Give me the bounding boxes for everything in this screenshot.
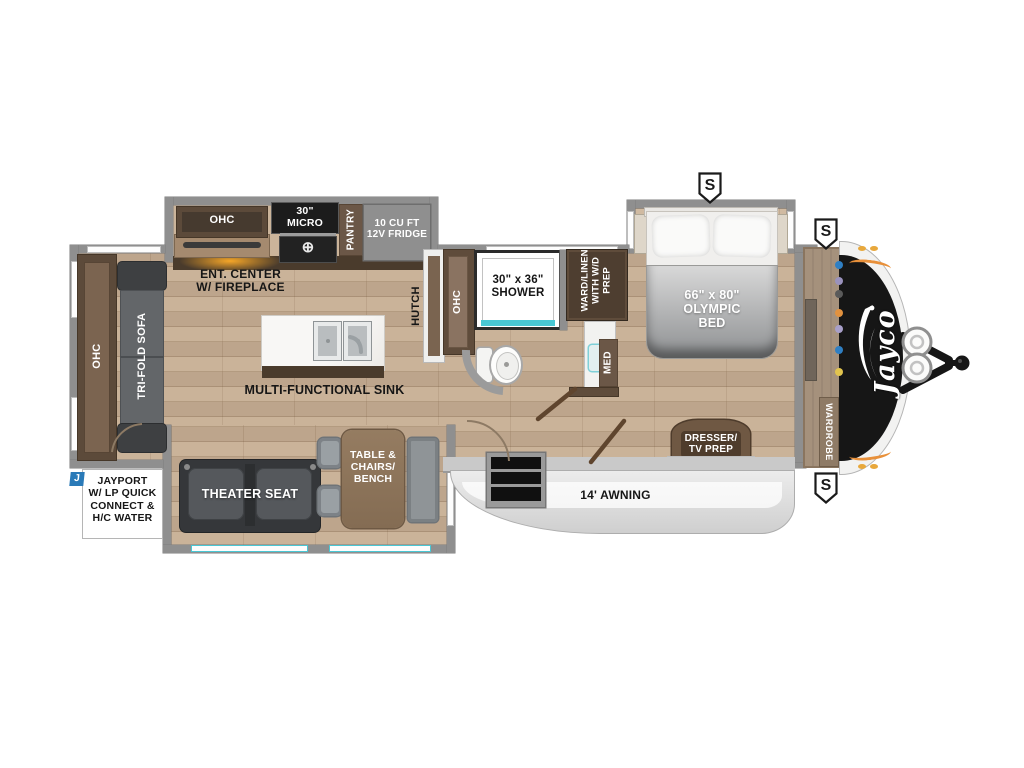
bed-pillow-right (712, 214, 771, 258)
sink-drain-left (326, 339, 330, 343)
front-dot-7 (835, 368, 843, 376)
cap-marker-light-1 (858, 246, 866, 251)
speaker-badge-front-top: S (814, 218, 838, 250)
top-window-a (88, 247, 160, 252)
bed-pillow-left (651, 214, 710, 258)
nightstand-left (635, 215, 647, 253)
entry-step-2 (491, 472, 541, 484)
badge-letter: S (821, 223, 832, 240)
front-dot-2 (835, 277, 843, 285)
hitch-assembly (895, 318, 975, 410)
wardrobe-label: WARDROBE (824, 400, 834, 464)
cap-marker-light-3 (858, 464, 866, 469)
hutch-label: HUTCH (410, 281, 422, 331)
left-window-1 (72, 262, 77, 317)
hitch-ball-icon (955, 356, 970, 371)
dinette-label: TABLE & CHAIRS/ BENCH (344, 450, 402, 485)
med-label: MED (602, 343, 613, 383)
speaker-badge-front-bottom: S (814, 472, 838, 504)
dinette-chair-1 (318, 438, 342, 468)
under-med-wall (570, 388, 618, 396)
entry-step-1 (491, 457, 541, 469)
island-label: MULTI-FUNCTIONAL SINK (237, 383, 412, 397)
jayport-label: JAYPORT W/ LP QUICK CONNECT & H/C WATER (83, 475, 162, 525)
front-dot-5 (835, 325, 843, 333)
dinette-bench (408, 438, 438, 522)
ward-linen-label: WARD/LINEN WITH W/D PREP (581, 246, 614, 314)
island-base (262, 366, 384, 378)
front-dot-4 (835, 309, 843, 317)
propane-tank-2-icon (903, 354, 931, 382)
left-window-2 (72, 398, 77, 450)
theater-label: THEATER SEAT (185, 487, 315, 501)
propane-tank-1-icon (903, 328, 931, 356)
sofa-label: TRI-FOLD SOFA (136, 301, 148, 411)
bath-ohc-label: OHC (452, 282, 464, 322)
fridge-label: 10 CU FT 12V FRIDGE (364, 218, 430, 240)
bedroom-front-wall (795, 253, 803, 462)
sofa-arm-bottom (118, 424, 166, 452)
cap-marker-light-4 (870, 464, 878, 469)
shower-label: 30" x 36" SHOWER (476, 274, 560, 300)
cap-marker-light-2 (870, 246, 878, 251)
jayport-badge-letter: J (69, 473, 84, 484)
jayport-badge: J (69, 472, 84, 486)
theater-screw-tr (310, 464, 316, 470)
tv-icon (183, 242, 261, 248)
bath-partition-wall (560, 250, 567, 330)
shower-teal-strip (481, 320, 555, 326)
microwave-label: 30" MICRO (272, 206, 338, 230)
slide-window-1 (192, 546, 307, 551)
sink-drain-right (356, 339, 360, 343)
kitchen-ohc-label: OHC (177, 214, 267, 226)
badge-letter: S (821, 477, 832, 494)
dresser-label: DRESSER/ TV PREP (681, 433, 741, 455)
kitchen-slide-left-wall (165, 197, 173, 262)
pantry-label: PANTRY (345, 202, 356, 258)
bottom-wall-a (70, 460, 163, 468)
bed-label: 66" x 80" OLYMPIC BED (652, 288, 772, 330)
dinette-chair-2 (318, 486, 342, 516)
hutch-inner (428, 256, 440, 356)
hutch (424, 250, 444, 362)
toilet-flush-dot (504, 362, 509, 367)
burner-icon: ⊕ (280, 240, 336, 257)
bedroom-window-left (628, 212, 633, 248)
ent-center-label: ENT. CENTER W/ FIREPLACE (178, 268, 303, 295)
sofa-arm-top (118, 262, 166, 290)
awning-label: 14' AWNING (558, 489, 673, 502)
bedroom-window-right (788, 212, 793, 248)
front-dot-6 (835, 346, 843, 354)
front-dot-3 (835, 290, 843, 298)
front-dot-1 (835, 261, 843, 269)
theater-screw-tl (184, 464, 190, 470)
speaker-badge-bedroom: S (698, 172, 722, 204)
front-band-window (806, 300, 816, 380)
slide-window-2 (330, 546, 430, 551)
hitch-ball-highlight (958, 359, 962, 363)
entry-step-3 (491, 487, 541, 501)
floorplan-canvas: OHC 30" MICRO ⊕ PANTRY 10 CU FT 12V FRID… (0, 0, 1024, 768)
rear-ohc-label: OHC (91, 336, 103, 376)
badge-letter: S (705, 177, 716, 194)
